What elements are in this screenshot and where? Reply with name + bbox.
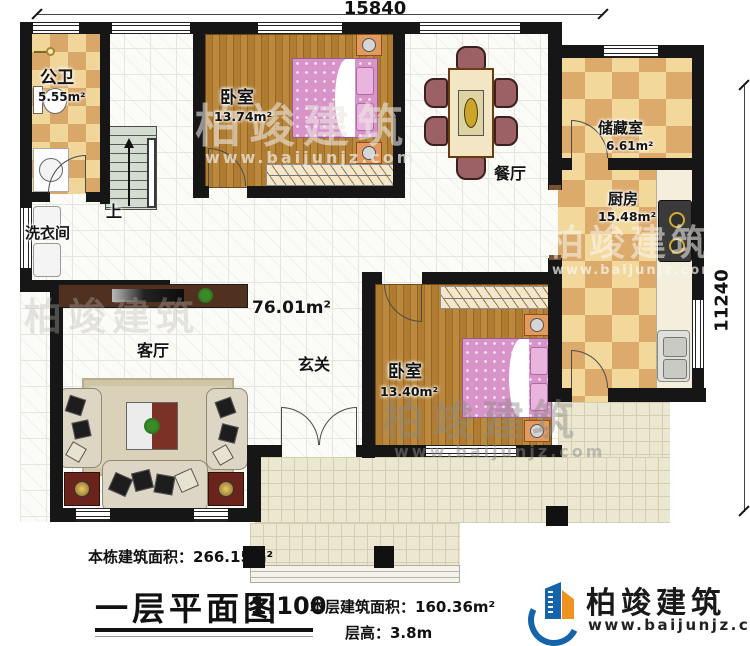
cushion	[218, 423, 239, 444]
kitchen-area-label: 15.48m²	[598, 211, 656, 224]
building-area-text: 本栋建筑面积：266.15m²	[88, 546, 273, 567]
corner-table	[64, 472, 100, 506]
table-centerpiece	[464, 98, 478, 128]
logo-building-orange-icon	[562, 590, 574, 619]
column	[374, 546, 394, 568]
cushion	[153, 473, 175, 495]
storage-area-label: 6.61m²	[606, 140, 653, 152]
wall-segment	[608, 388, 706, 402]
wall-segment	[50, 292, 63, 522]
brand-logo: 柏竣建筑 www.baijunjz.com	[528, 578, 746, 640]
nightstand	[524, 314, 550, 336]
window	[692, 300, 704, 368]
shower-head-icon	[46, 47, 55, 56]
sink-basin	[663, 337, 687, 357]
wardrobe	[266, 164, 394, 186]
wall-segment	[393, 22, 405, 198]
cushion	[131, 469, 154, 492]
window	[194, 508, 228, 522]
floor-plan-canvas: 15840 11240	[0, 0, 750, 646]
cushion	[212, 444, 234, 466]
title-underline-thin	[95, 636, 313, 637]
cushion	[215, 397, 237, 419]
wall-segment	[100, 22, 110, 204]
nightstand	[356, 142, 382, 164]
bed-blanket	[509, 339, 529, 417]
cushion	[108, 472, 133, 497]
bed	[292, 58, 378, 138]
kitchen-sink	[657, 330, 690, 382]
wall-segment	[193, 22, 205, 198]
burner	[669, 238, 685, 254]
sofa-right	[206, 388, 248, 470]
front-terrace	[255, 457, 670, 523]
stair-rail	[147, 138, 156, 208]
window	[112, 22, 190, 34]
washing-machine	[33, 243, 61, 277]
window	[604, 45, 658, 58]
wall-segment	[516, 445, 562, 457]
top-dimension-label: 15840	[320, 0, 430, 19]
logo-building-blue-icon	[545, 582, 561, 619]
nightstand	[356, 34, 382, 56]
bedroom1-area-label: 13.74m²	[214, 111, 272, 124]
plant	[144, 418, 160, 434]
storage-name-label: 储藏室	[598, 121, 643, 136]
dining-chair	[456, 46, 486, 70]
bedroom1-name-label: 卧室	[220, 90, 254, 107]
nightstand	[524, 420, 550, 442]
dining-chair	[456, 156, 486, 180]
wall-segment	[608, 158, 704, 170]
wall-segment	[247, 186, 405, 198]
brand-website: www.baijunjz.com	[588, 616, 750, 634]
pillow	[530, 383, 548, 411]
wall-segment	[562, 158, 572, 170]
door-jamb	[549, 185, 561, 190]
medallion	[74, 481, 90, 497]
stair-arrow-head	[124, 138, 134, 148]
cushion	[65, 395, 86, 416]
bedroom2-name-label: 卧室	[388, 364, 422, 381]
wall-segment	[193, 186, 209, 198]
window	[426, 445, 516, 457]
wardrobe	[440, 286, 552, 309]
dining-chair	[424, 78, 448, 108]
medallion	[218, 481, 234, 497]
bed	[462, 338, 552, 418]
entry-porch	[250, 523, 460, 565]
plant	[198, 288, 213, 303]
cushion	[71, 419, 91, 439]
right-dimension-label: 11240	[712, 256, 733, 346]
sofa-left	[58, 388, 102, 468]
dining-chair	[424, 116, 448, 146]
wall-segment	[362, 272, 375, 458]
dining-chair	[494, 116, 518, 146]
bed-blanket	[335, 59, 355, 137]
sofa-main	[102, 460, 208, 512]
right-dimension-line	[744, 86, 745, 512]
sink-basin	[663, 359, 687, 379]
stove	[658, 200, 692, 262]
living-name-label: 客厅	[137, 343, 169, 359]
bathroom-area-label: 5.55m²	[38, 91, 85, 103]
burner	[669, 212, 685, 228]
window	[258, 22, 342, 34]
stairs-up-label: 上	[106, 204, 122, 220]
cushion	[174, 468, 199, 493]
floor-area-text: 本层建筑面积：160.36m²	[310, 596, 495, 617]
bathroom-name-label: 公卫	[40, 70, 74, 87]
cushion	[65, 441, 87, 463]
corner-table	[208, 472, 244, 506]
pillow	[356, 103, 374, 131]
column	[546, 506, 568, 526]
pillow	[356, 67, 374, 95]
stair-direction-arrow	[128, 146, 130, 206]
floor-height-text: 层高：3.8m	[345, 622, 432, 643]
porch-steps	[250, 565, 460, 583]
hall-name-label: 玄关	[298, 357, 330, 373]
hall-area-label: 76.01m²	[252, 300, 331, 317]
window	[420, 22, 520, 34]
tv	[112, 289, 184, 302]
dining-name-label: 餐厅	[494, 166, 526, 182]
wall-segment	[422, 272, 562, 284]
dining-chair	[494, 78, 518, 108]
window	[76, 508, 110, 522]
wall-segment	[86, 192, 110, 202]
title-underline-thick	[95, 628, 313, 632]
door-jamb	[549, 255, 561, 260]
wall-segment	[553, 388, 572, 402]
pillow	[530, 347, 548, 375]
bedroom2-area-label: 13.40m²	[380, 386, 438, 399]
laundry-name-label: 洗衣间	[25, 226, 70, 241]
wall-segment	[356, 445, 426, 457]
wall-segment	[20, 192, 50, 202]
kitchen-name-label: 厨房	[608, 192, 638, 207]
window	[33, 22, 79, 34]
